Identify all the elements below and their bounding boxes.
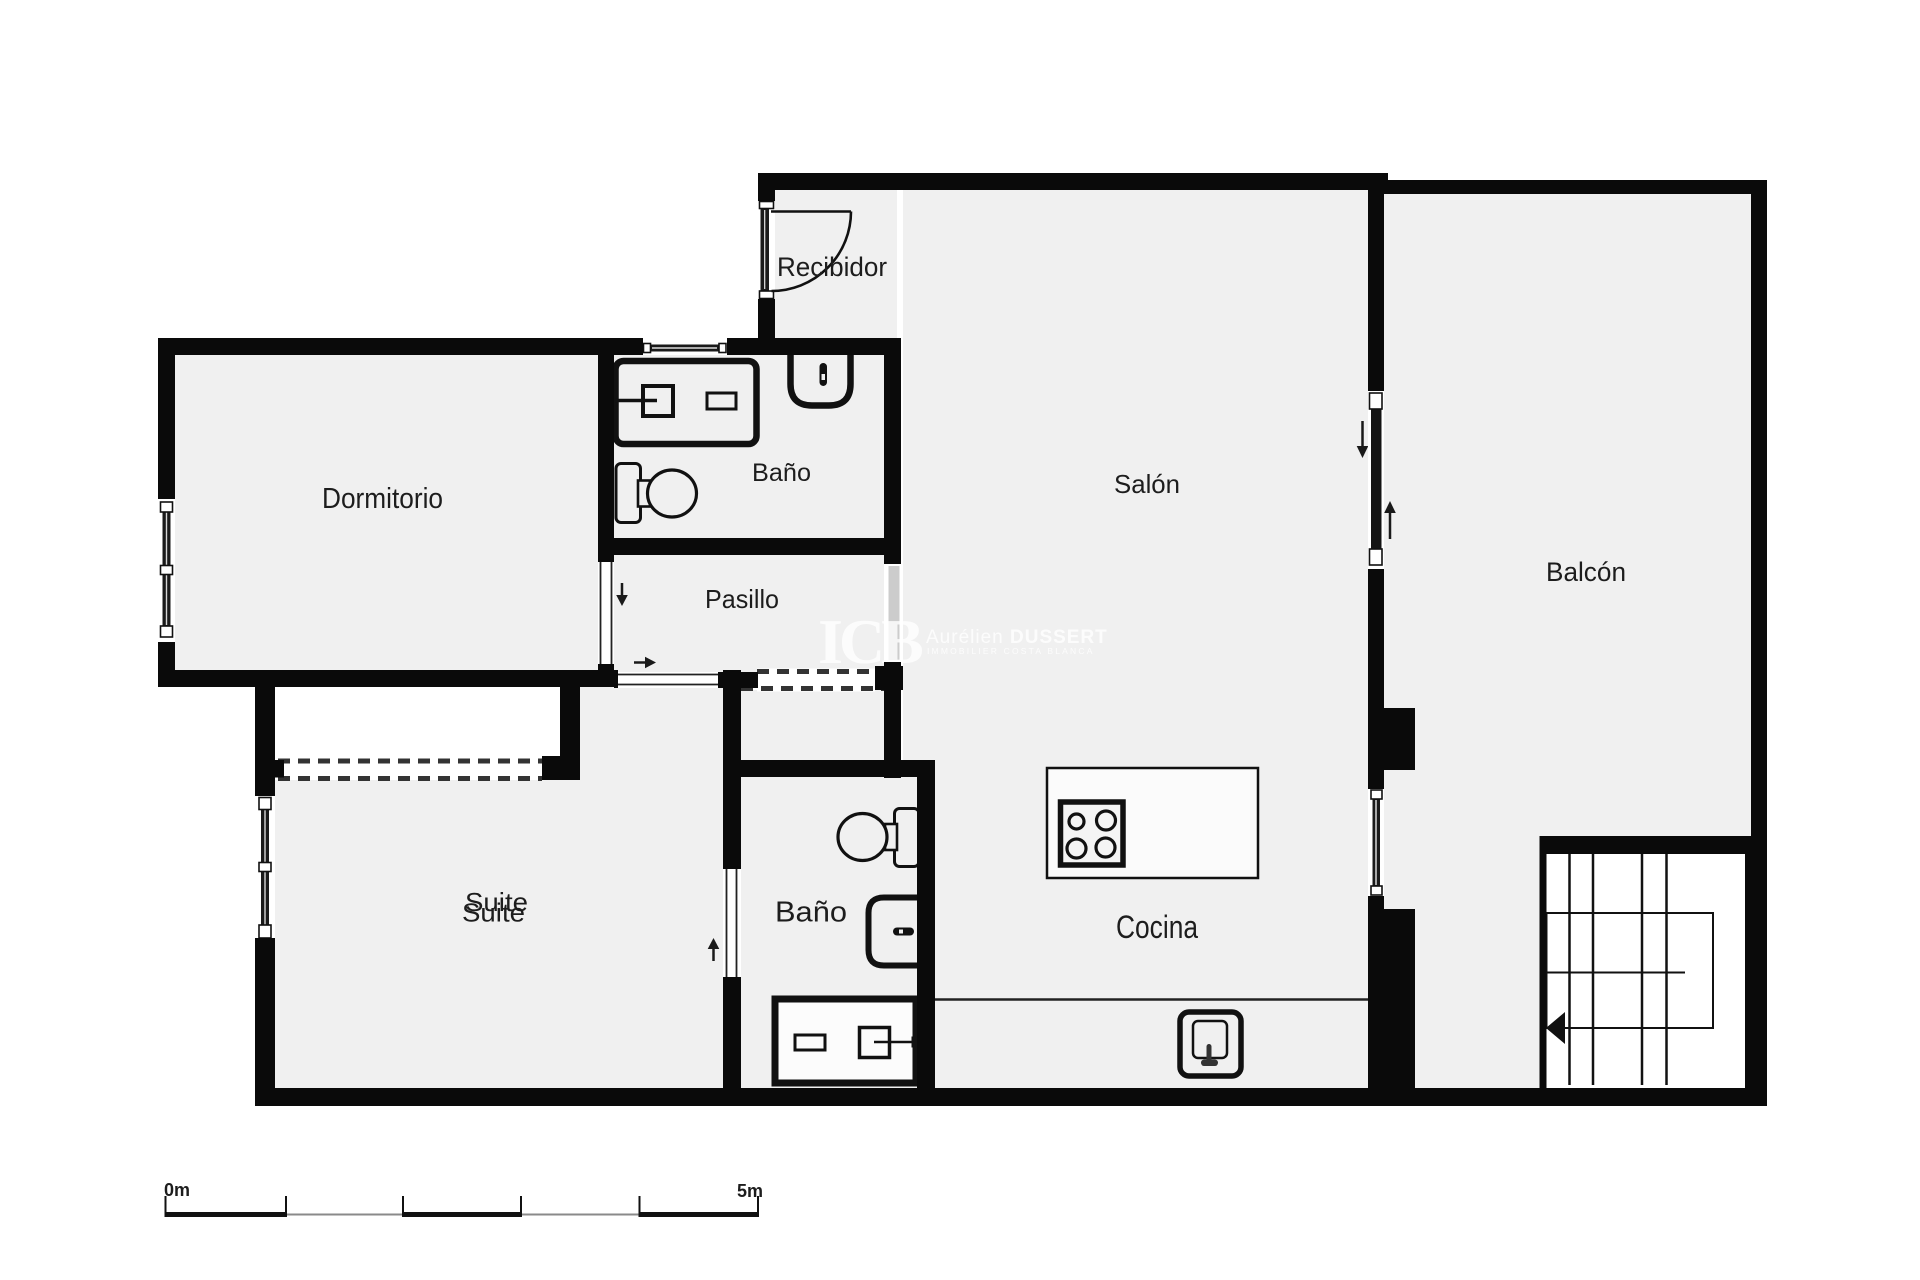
- svg-text:Cocina: Cocina: [1116, 909, 1198, 945]
- svg-text:ICB: ICB: [818, 606, 922, 677]
- svg-text:Recibidor: Recibidor: [777, 252, 887, 282]
- svg-text:5m: 5m: [737, 1181, 763, 1201]
- svg-text:Baño: Baño: [752, 459, 811, 487]
- svg-text:Dormitorio: Dormitorio: [322, 483, 443, 515]
- svg-text:Salón: Salón: [1114, 469, 1180, 499]
- svg-text:Baño: Baño: [775, 897, 847, 929]
- svg-text:Pasillo: Pasillo: [705, 584, 779, 614]
- svg-text:IMMOBILIER COSTA BLANCA: IMMOBILIER COSTA BLANCA: [927, 646, 1095, 656]
- svg-text:Suite: Suite: [462, 898, 525, 928]
- svg-text:Balcón: Balcón: [1546, 557, 1626, 587]
- svg-text:0m: 0m: [164, 1180, 190, 1200]
- svg-text:Aurélien DUSSERT: Aurélien DUSSERT: [926, 627, 1108, 648]
